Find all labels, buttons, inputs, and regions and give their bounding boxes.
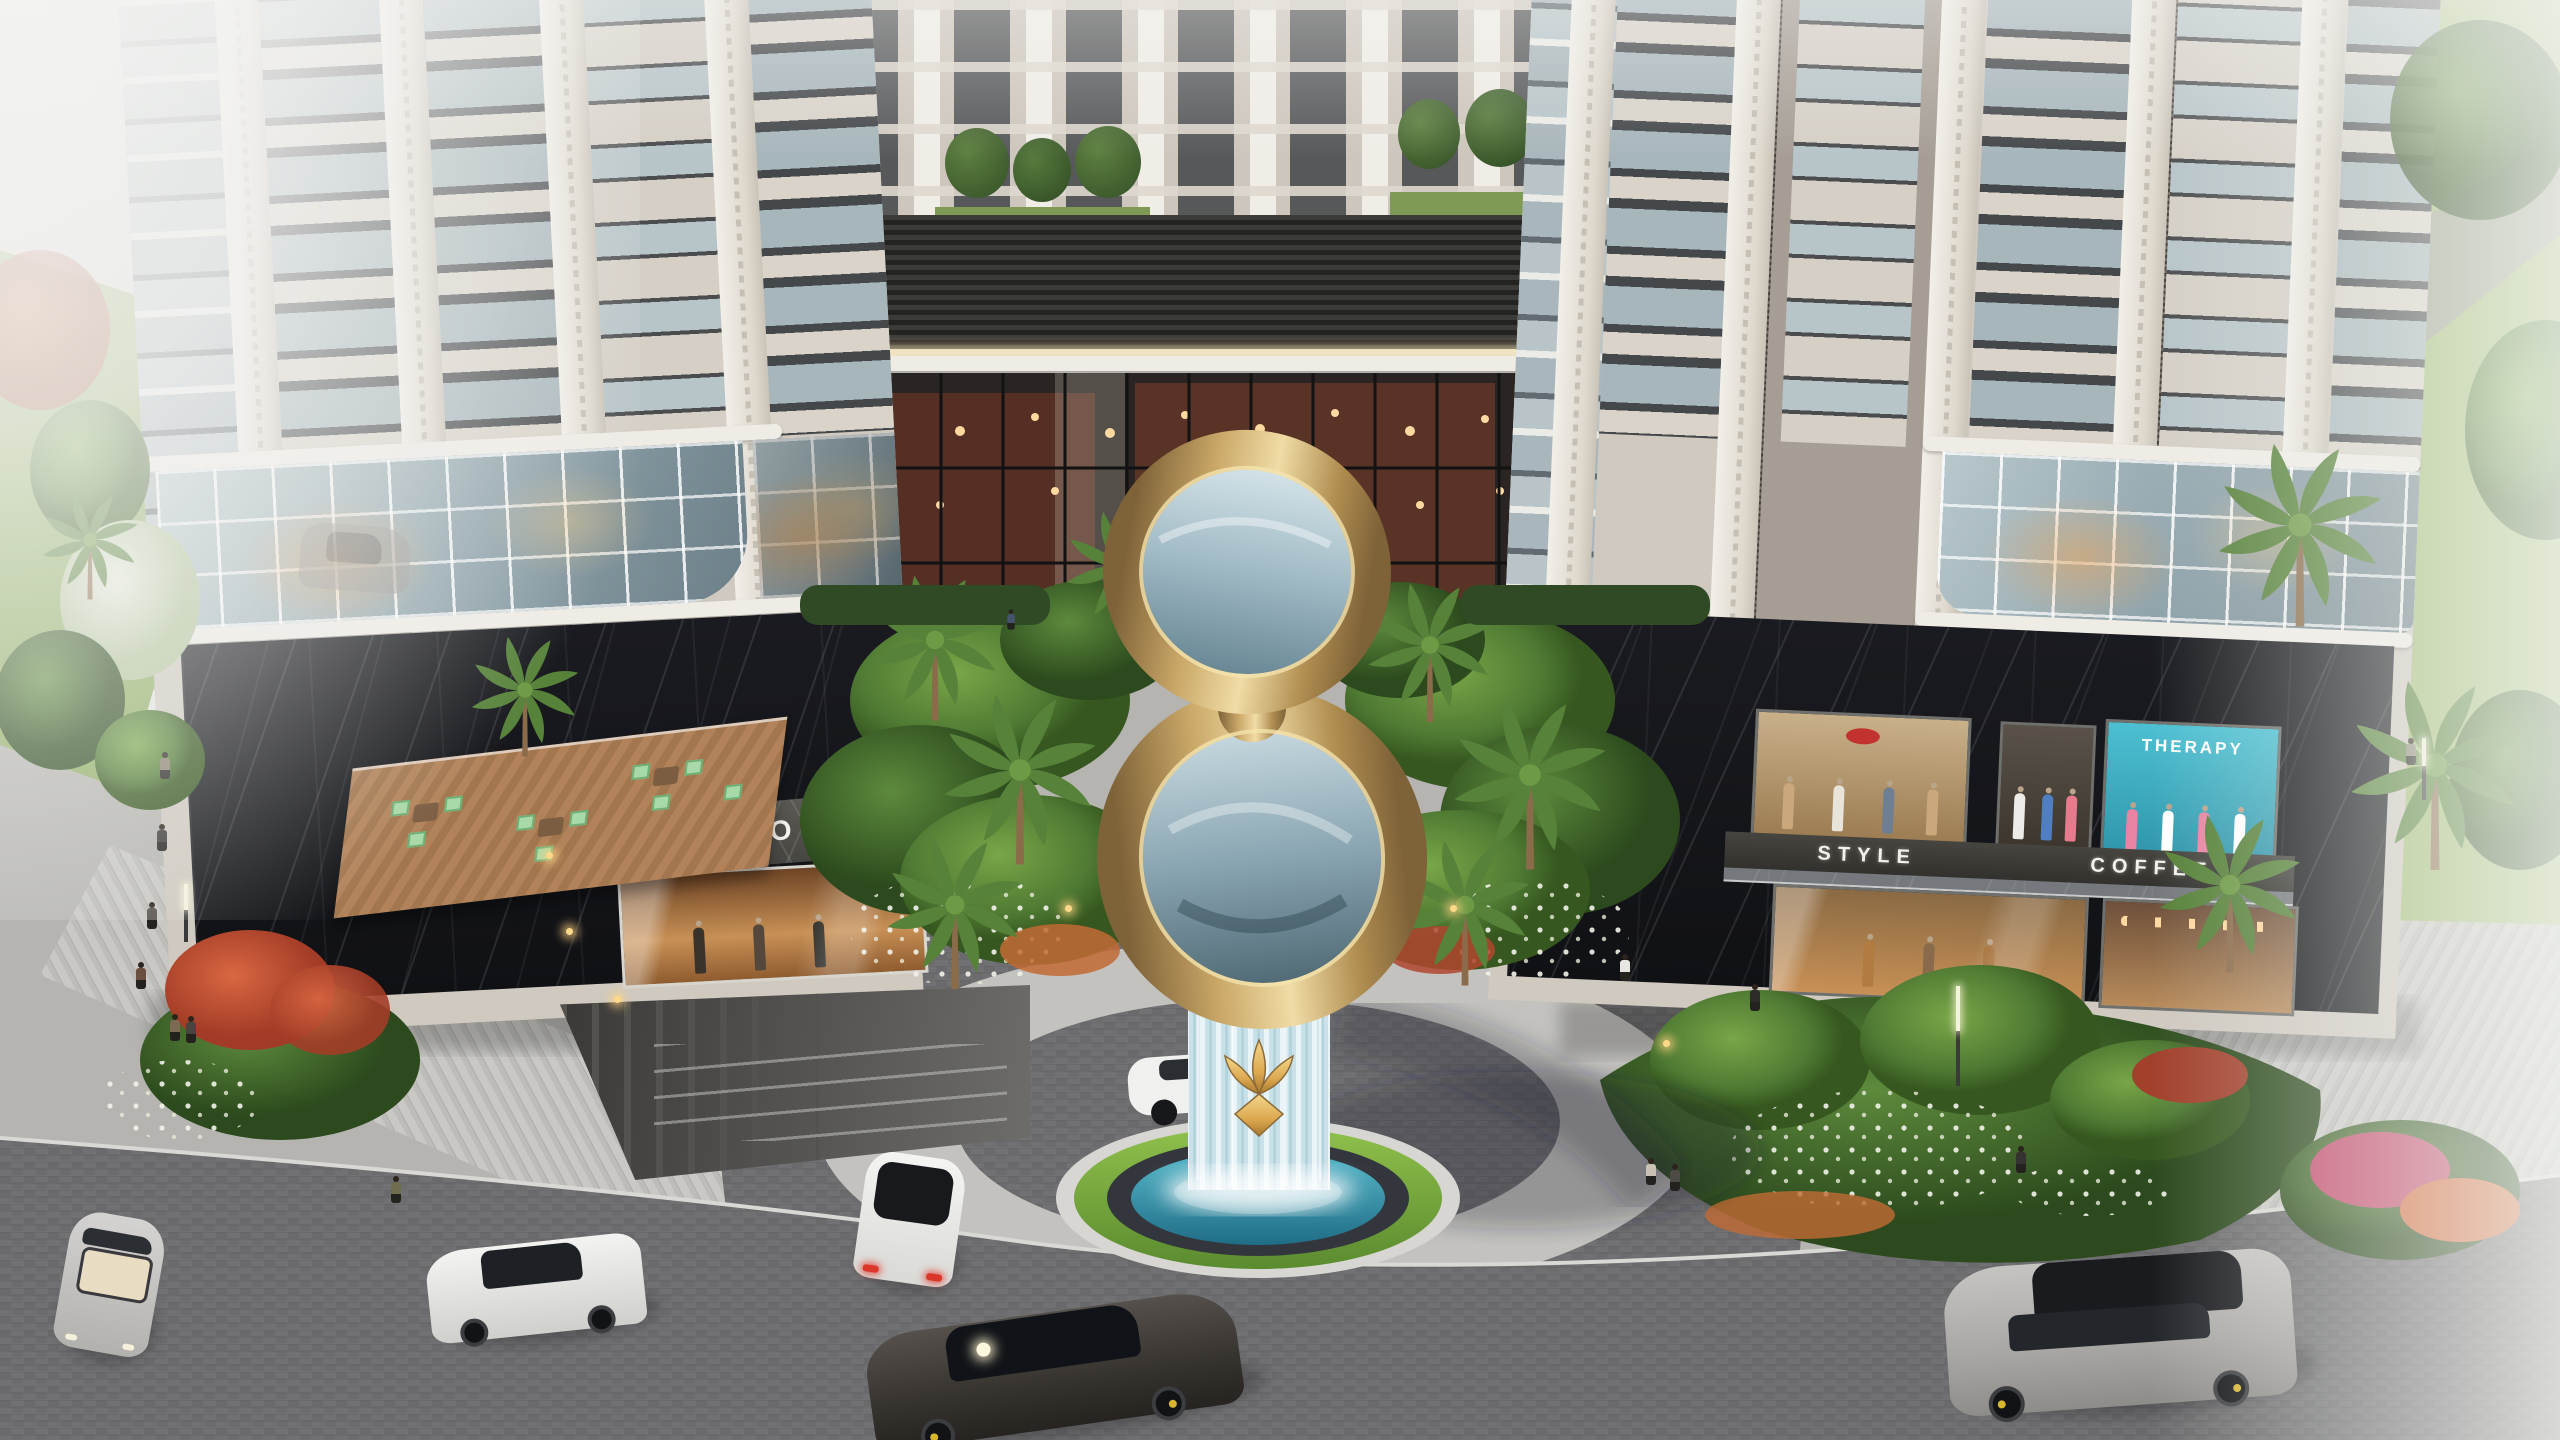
bollard-light: [566, 928, 573, 935]
car-faded-grey: [298, 521, 412, 595]
pedestrian: [147, 902, 157, 929]
pedestrian: [136, 962, 146, 989]
pedestrian: [391, 1176, 401, 1203]
pedestrian: [1007, 609, 1015, 629]
bollard-light: [614, 996, 621, 1003]
street-lamp: [1956, 986, 1960, 1086]
car-grey-sport-wagon: [1941, 1246, 2298, 1418]
scene-canvas: SHOP: [0, 0, 2560, 1440]
pedestrian: [170, 1014, 180, 1041]
golden-ribbon-loops: [1104, 430, 1419, 1020]
street-lamp: [2422, 738, 2426, 800]
golden-ribbon-sculpture: [0, 0, 2560, 1440]
splash-foam: [1163, 1168, 1355, 1212]
pedestrian: [186, 1016, 196, 1043]
garden-light: [1065, 905, 1072, 912]
street-lamp: [184, 884, 188, 942]
pedestrian: [160, 752, 170, 779]
car-white-hatchback: [852, 1149, 969, 1290]
pedestrian: [157, 824, 167, 851]
bollard-light: [1663, 1040, 1670, 1047]
pedestrian: [1670, 1164, 1680, 1191]
garden-light: [1450, 905, 1457, 912]
pedestrian: [1646, 1158, 1656, 1185]
pedestrian: [2406, 738, 2416, 765]
bollard-light: [546, 852, 553, 859]
pedestrian: [1750, 984, 1760, 1011]
pedestrian: [2016, 1146, 2026, 1173]
pedestrian: [1620, 954, 1630, 981]
